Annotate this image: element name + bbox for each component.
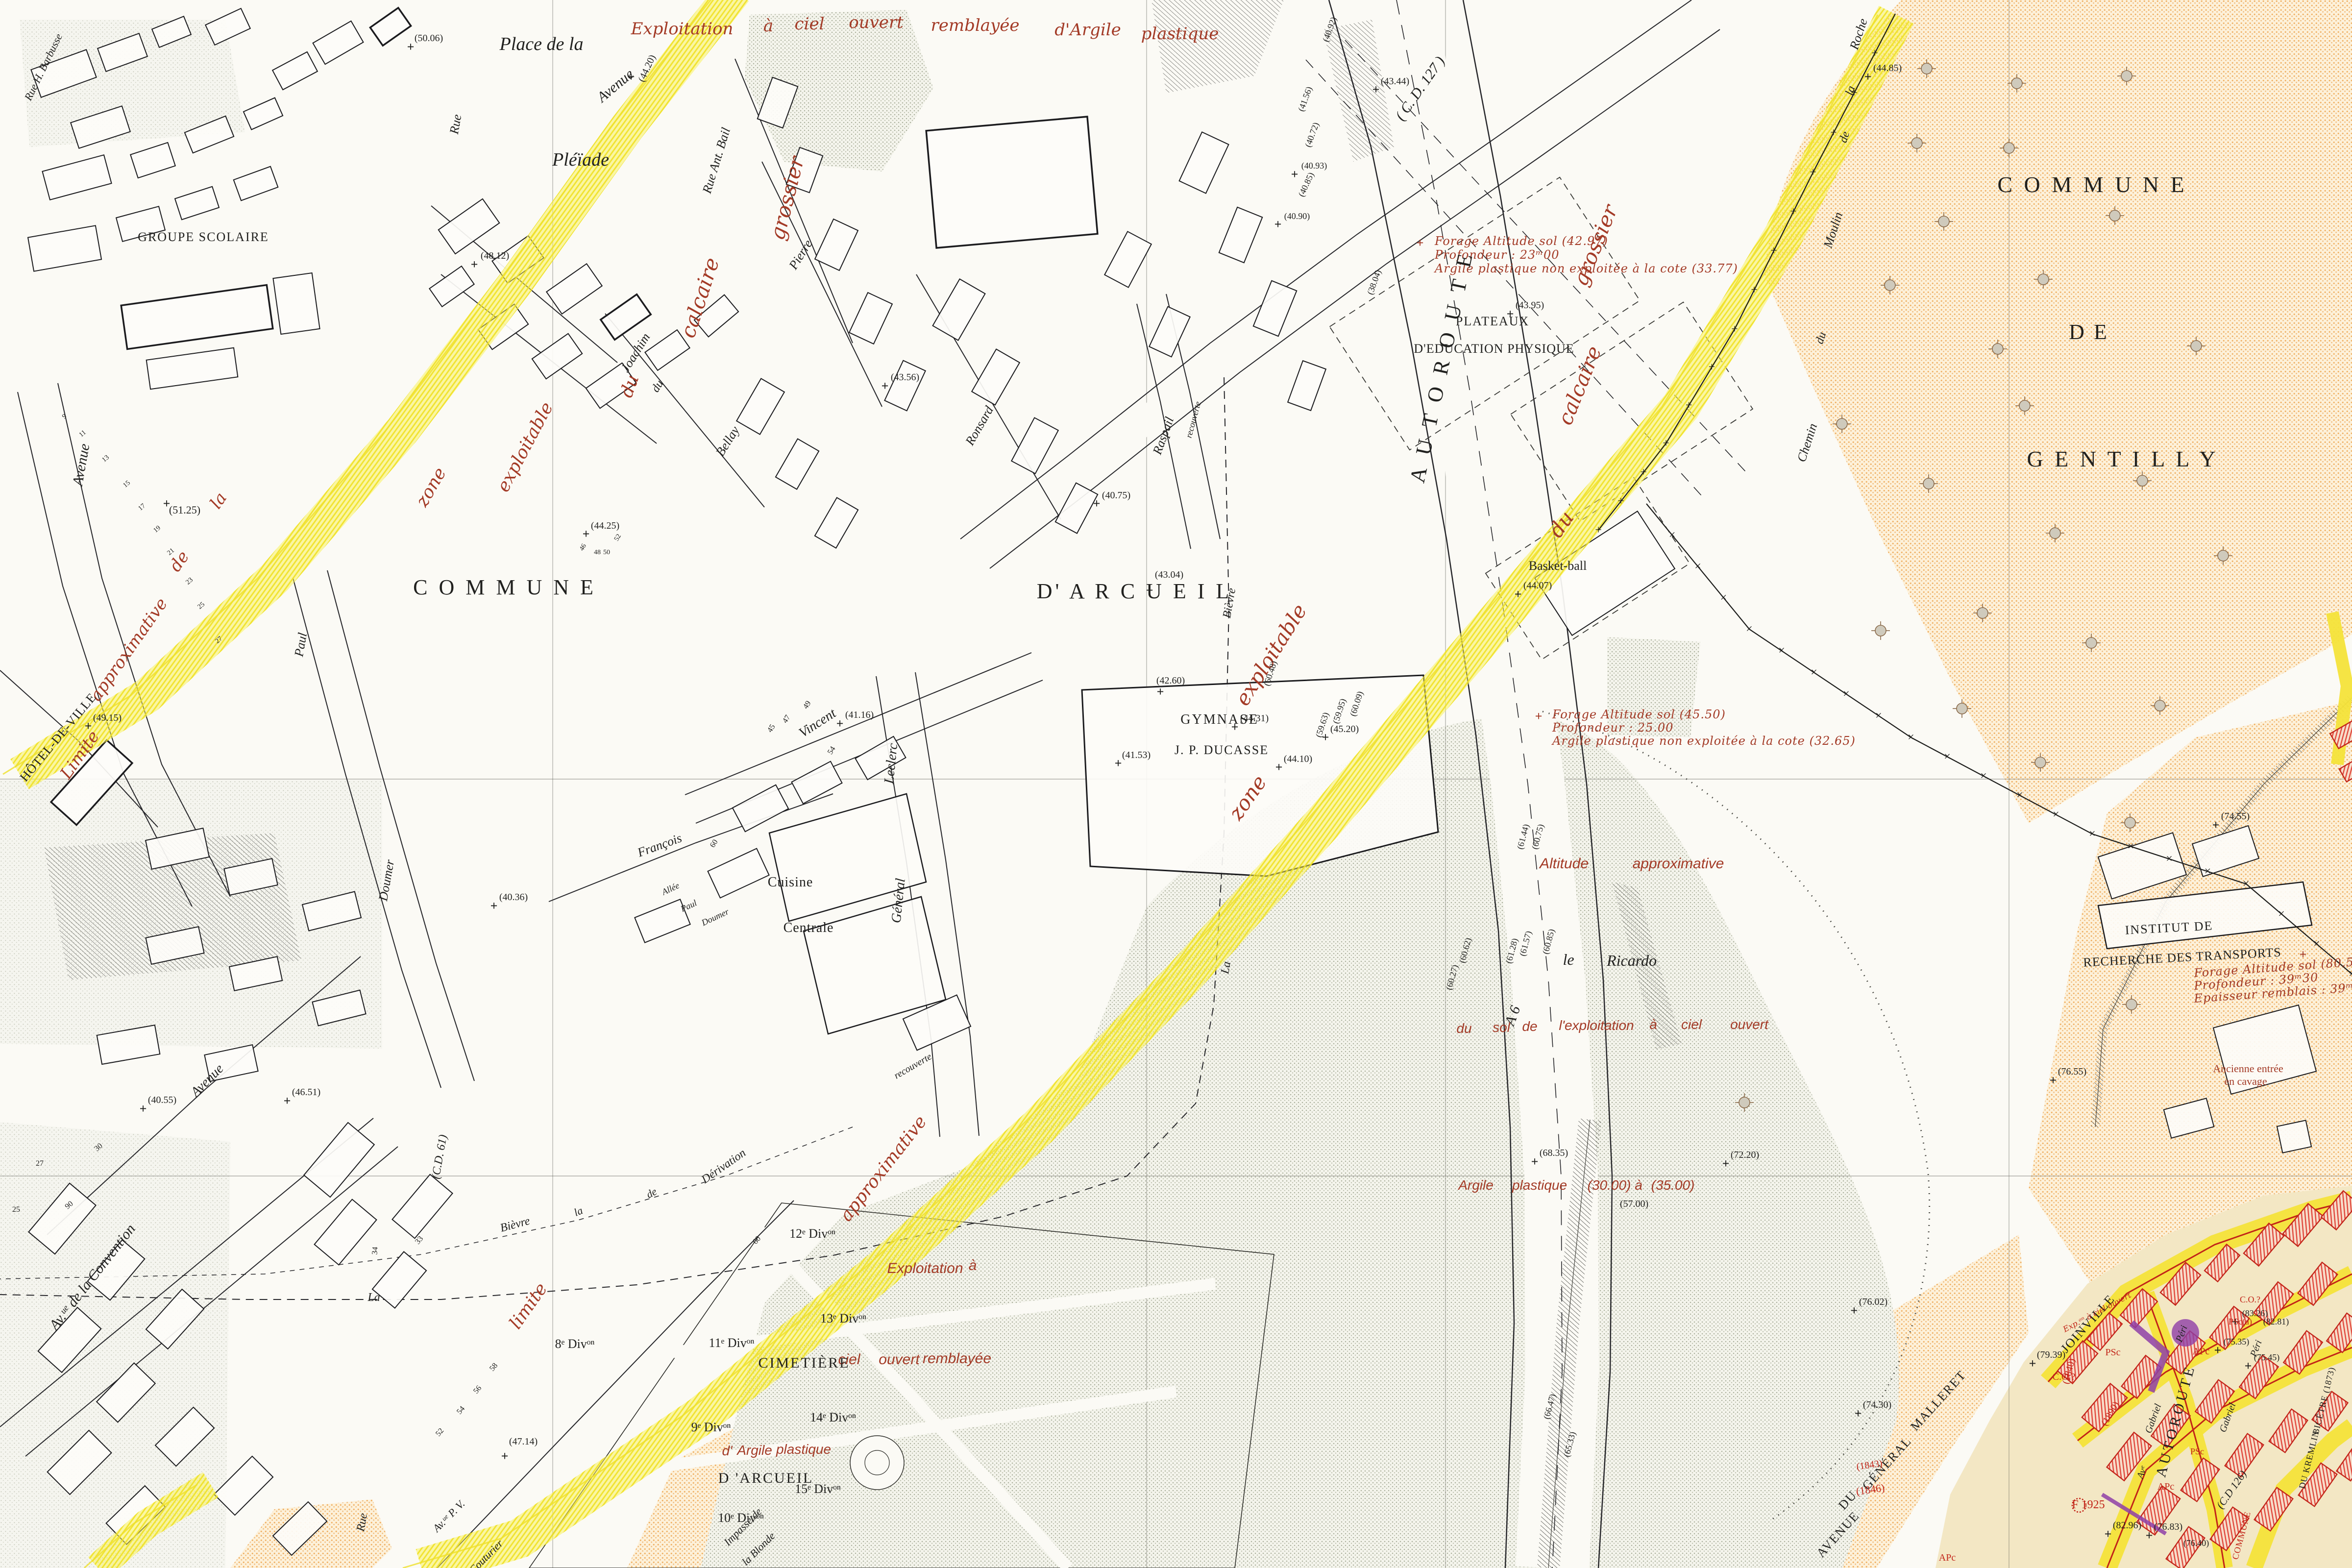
elevation-cross-icon: + (490, 899, 498, 913)
borehole-icon (2126, 999, 2137, 1010)
map-label: (49.15) (93, 712, 122, 723)
map-label: PSc(a) (2229, 1317, 2252, 1327)
map-label: C O M M U N E (1997, 172, 2187, 197)
map-label: (44.10) (1284, 754, 1312, 764)
boundary-tick-x: × (1843, 688, 1850, 701)
boundary-tick-x: × (1694, 560, 1701, 573)
map-label: Forage Altitude sol (45.50) (1552, 708, 1726, 721)
map-label: l'exploitation (1559, 1018, 1634, 1033)
elevation-cross-icon: + (1417, 236, 1424, 250)
elevation-cross-icon: + (2214, 1343, 2222, 1357)
boundary-tick-+: + (1810, 166, 1816, 179)
elevation-cross-icon: + (583, 527, 590, 541)
boundary-tick-+: + (1640, 466, 1647, 479)
boundary-tick-x: × (1720, 591, 1727, 604)
map-label: (76.02) (1859, 1297, 1887, 1307)
map-label: La (1219, 960, 1233, 975)
map-label: 13ᵉ Divᵒⁿ (820, 1311, 866, 1325)
boundary-tick-x: × (1746, 623, 1753, 636)
map-label: (40.55) (148, 1095, 176, 1105)
map-label: (74.55) (2221, 811, 2250, 822)
borehole-icon (1923, 478, 1934, 489)
boundary-tick-+: + (1830, 126, 1837, 139)
elevation-cross-icon: + (1531, 1154, 1539, 1169)
borehole-icon (1875, 625, 1886, 636)
map-label: (43.95) (1516, 300, 1544, 311)
map-canvas[interactable]: ×××××××××××××××××××××+++++++++++++++++++… (0, 0, 2352, 1568)
boundary-tick-x: × (2313, 938, 2320, 951)
map-label: (44.25) (591, 520, 619, 531)
borehole-icon (1938, 216, 1949, 227)
map-label: 34 (370, 1247, 379, 1255)
map-label: à (1635, 1177, 1642, 1193)
map-label: Argile plastique non exploitée à la cote… (1551, 734, 1856, 748)
borehole-icon (1992, 343, 2003, 354)
elevation-cross-icon: + (2050, 1073, 2057, 1087)
map-label: (44.31) (1240, 713, 1269, 724)
boundary-tick-x: × (1944, 750, 1951, 763)
elevation-cross-icon: + (2212, 818, 2220, 832)
elevation-cross-icon: + (1722, 1156, 1730, 1171)
map-label: Place de la (499, 34, 584, 54)
boundary-tick-x: × (2089, 828, 2096, 840)
map-label: à (969, 1257, 977, 1274)
map-label: (82.96) (2113, 1520, 2141, 1531)
borehole-icon (2109, 210, 2120, 221)
elevation-cross-icon: + (1851, 1303, 1858, 1318)
map-label: (35.00) (1651, 1177, 1695, 1193)
map-label: Exploitation (887, 1260, 963, 1276)
elevation-cross-icon: + (1855, 1406, 1862, 1421)
elevation-cross-icon: + (2105, 1527, 2112, 1541)
building (273, 273, 319, 334)
borehole-icon (2038, 274, 2049, 285)
map-label: 27 (36, 1159, 44, 1168)
map-label: Altitude (1539, 856, 1589, 872)
borehole-icon (2019, 400, 2030, 411)
elevation-cross-icon: + (1864, 70, 1872, 84)
map-label: (40.93) (1301, 161, 1327, 171)
map-label: C.O.? (2240, 1295, 2260, 1304)
map-label: La (367, 1291, 380, 1304)
cemetery-roundabout (850, 1436, 904, 1490)
map-label: (45.20) (1330, 724, 1359, 735)
map-label: Cuisine (768, 875, 813, 890)
boundary-tick-x: × (2016, 789, 2023, 802)
map-label: Argile (736, 1443, 772, 1458)
map-label: CIMETIÈRE (759, 1355, 850, 1371)
boundary-tick-+: + (1751, 284, 1758, 296)
borehole-icon (2004, 143, 2014, 153)
map-label: Centrale (784, 920, 834, 935)
elevation-cross-icon: + (2146, 1528, 2153, 1543)
map-label: ciel (1681, 1017, 1702, 1032)
elevation-cross-icon: + (1291, 167, 1298, 181)
map-label: (75.35) (2224, 1337, 2250, 1347)
map-label: APc (1939, 1552, 1956, 1563)
map-label: à (1649, 1017, 1657, 1032)
map-label: Ricardo (1606, 952, 1657, 969)
map-label: 11ᵉ Divᵒⁿ (709, 1336, 755, 1350)
map-label: (50.06) (415, 33, 443, 44)
map-label: Argile (1457, 1177, 1494, 1193)
map-label: (40.75) (1102, 490, 1130, 501)
elevation-cross-icon: + (2029, 1356, 2036, 1371)
map-label: D' A R C U E I L (1037, 579, 1232, 603)
elevation-cross-icon: + (471, 257, 478, 271)
boundary-tick-+: + (1595, 524, 1602, 537)
borehole-icon (2086, 637, 2097, 648)
map-label: (76.83) (2154, 1521, 2182, 1532)
boundary-tick-+: + (1686, 399, 1692, 412)
map-label: C O M M U N E (413, 575, 596, 599)
elevation-cross-icon: + (882, 379, 889, 393)
map-label: (68.35) (1540, 1148, 1568, 1158)
map-label: plastique (1141, 24, 1219, 44)
map-label: (43.04) (1155, 569, 1183, 580)
map-label: remblayée (923, 1350, 991, 1367)
boundary-tick-+: + (1770, 245, 1777, 257)
map-label: J. P. DUCASSE (1175, 743, 1269, 757)
boundary-tick-x: × (1875, 710, 1882, 722)
map-label: Exploitation (631, 19, 734, 39)
borehole-icon (2011, 78, 2022, 89)
boundary-tick-x: × (1980, 770, 1987, 783)
borehole-icon (1921, 63, 1932, 74)
elevation-cross-icon: + (140, 1102, 147, 1116)
map-label: 12ᵉ Divᵒⁿ (789, 1226, 835, 1241)
boundary-tick-x: × (2205, 865, 2211, 878)
elevation-cross-icon: + (1275, 760, 1283, 774)
map-label: (76.40) (2183, 1538, 2209, 1548)
map-label: approximative (1633, 856, 1724, 872)
borehole-icon (1885, 280, 1895, 291)
map-sheet: ×××××××××××××××××××××+++++++++++++++++++… (0, 0, 2352, 1568)
map-label: (72.20) (1731, 1150, 1759, 1160)
map-label: (44.85) (1873, 63, 1902, 73)
map-label: (40.36) (499, 892, 528, 903)
borehole-icon (2035, 757, 2046, 768)
map-label: (82.81) (2263, 1317, 2289, 1327)
map-label: plastique (1512, 1177, 1567, 1193)
map-label: 8ᵉ Divᵒⁿ (555, 1337, 595, 1351)
map-label: (43.44) (1381, 76, 1409, 87)
map-label: (41.53) (1122, 750, 1151, 760)
borehole-icon (1977, 608, 1988, 618)
boundary-tick-+: + (1663, 437, 1669, 450)
map-label: à (763, 16, 773, 36)
map-label: PSc (2190, 1446, 2204, 1456)
borehole-icon (2218, 550, 2229, 561)
map-label: (51.25) (169, 504, 200, 516)
boundary-tick-x: × (1669, 529, 1676, 541)
map-label: (30.00) (1588, 1177, 1631, 1193)
map-label: APc (2193, 1346, 2210, 1357)
boundary-tick-x: × (2243, 878, 2250, 890)
borehole-icon (2125, 817, 2135, 828)
map-label: Basket-ball (1529, 559, 1587, 573)
map-label: ouvert (879, 1351, 920, 1368)
map-label: (47.14) (509, 1436, 538, 1447)
elevation-cross-icon: + (407, 40, 415, 54)
map-label: GROUPE SCOLAIRE (138, 230, 269, 244)
map-label: Ancienne entrée (2213, 1062, 2283, 1075)
borehole-icon (2155, 700, 2165, 711)
elevation-cross-icon: + (1274, 217, 1282, 231)
map-label: D'EDUCATION PHYSIQUE (1414, 342, 1574, 356)
boundary-tick-+: + (1871, 47, 1878, 60)
elevation-cross-icon: + (1157, 685, 1164, 699)
map-label: en cavage (2224, 1075, 2267, 1087)
map-label: d'Argile (1054, 20, 1121, 40)
borehole-icon (1957, 703, 1967, 714)
map-label: D E (2069, 320, 2109, 344)
elevation-cross-icon: + (501, 1449, 509, 1463)
map-label: (48.12) (481, 250, 509, 261)
map-label: ouvert (849, 13, 904, 32)
map-label: G E N T I L L Y (2027, 446, 2218, 471)
map-label: 15ᵉ Divᵒⁿ (795, 1482, 841, 1496)
map-label: PLATEAUX (1456, 314, 1529, 328)
elevation-cross-icon: + (1535, 709, 1543, 723)
boundary-tick-+: + (1709, 361, 1715, 374)
map-label: 50 (603, 549, 610, 556)
map-label: C.O.? (2053, 1372, 2076, 1382)
boundary-tick-x: × (2128, 840, 2134, 853)
boundary-tick-x: × (2278, 907, 2285, 920)
elevation-cross-icon: + (2245, 1359, 2252, 1373)
map-label: Argile plastique non exploitée à la cote… (1434, 262, 1738, 275)
map-label: d' (722, 1443, 734, 1458)
boundary-tick-x: × (1778, 644, 1785, 657)
elevation-cross-icon: + (1115, 756, 1122, 770)
map-label: ouvert (1730, 1017, 1769, 1032)
elevation-cross-icon: + (1372, 82, 1380, 97)
map-label: APc (2157, 1481, 2175, 1492)
map-label: F 1925 (2072, 1498, 2105, 1511)
boundary-tick-x: × (2166, 853, 2173, 865)
map-label: Profondeur : 25.00 (1552, 721, 1673, 735)
borehole-icon (1911, 138, 1922, 148)
elevation-cross-icon: + (1093, 496, 1101, 511)
boundary-tick-+: + (1790, 205, 1797, 218)
elevation-cross-icon: + (284, 1094, 291, 1108)
map-label: (75.45) (2254, 1352, 2280, 1363)
map-label: le (1563, 951, 1574, 968)
boundary-tick-x: × (2053, 808, 2059, 821)
map-label: (41.16) (845, 710, 874, 720)
map-label: (57.00) (1620, 1199, 1648, 1209)
map-label: (46.51) (292, 1087, 320, 1098)
boundary-tick-+: + (1731, 323, 1738, 336)
map-label: (74.30) (1863, 1399, 1891, 1410)
map-label: (76.55) (2058, 1066, 2086, 1077)
map-label: (40.90) (1284, 211, 1310, 221)
building (2277, 1120, 2311, 1152)
elevation-cross-icon: + (1515, 587, 1522, 601)
map-label: 14ᵉ Divᵒⁿ (810, 1410, 856, 1424)
boundary-tick-x: × (2349, 968, 2352, 980)
map-label: de (1522, 1019, 1537, 1034)
map-label: 9ᵉ Divᵒⁿ (691, 1420, 731, 1434)
map-label: 48 (594, 549, 601, 556)
borehole-icon (2191, 341, 2202, 351)
boundary-tick-x: × (1811, 666, 1817, 679)
borehole-icon (1739, 1097, 1750, 1108)
map-label: plastique (776, 1442, 831, 1457)
borehole-icon (2121, 71, 2132, 81)
map-label: (42.60) (1156, 675, 1185, 686)
borehole-icon (1837, 418, 1847, 429)
boundary-tick-x: × (1908, 731, 1914, 744)
map-label: (44.07) (1523, 580, 1552, 591)
borehole-icon (2137, 475, 2148, 486)
map-label: 25 (12, 1205, 20, 1214)
map-label: ciel (795, 14, 825, 34)
map-label: (79.39) (2037, 1349, 2065, 1360)
borehole-icon (2050, 528, 2060, 539)
map-label: remblayée (931, 16, 1020, 35)
map-label: Pléïade (552, 149, 609, 170)
building (926, 117, 1098, 248)
boundary-tick-+: + (1617, 495, 1624, 508)
map-label: (43.56) (891, 372, 919, 383)
map-label: PSc (2105, 1347, 2120, 1358)
map-label: du (1456, 1021, 1472, 1036)
